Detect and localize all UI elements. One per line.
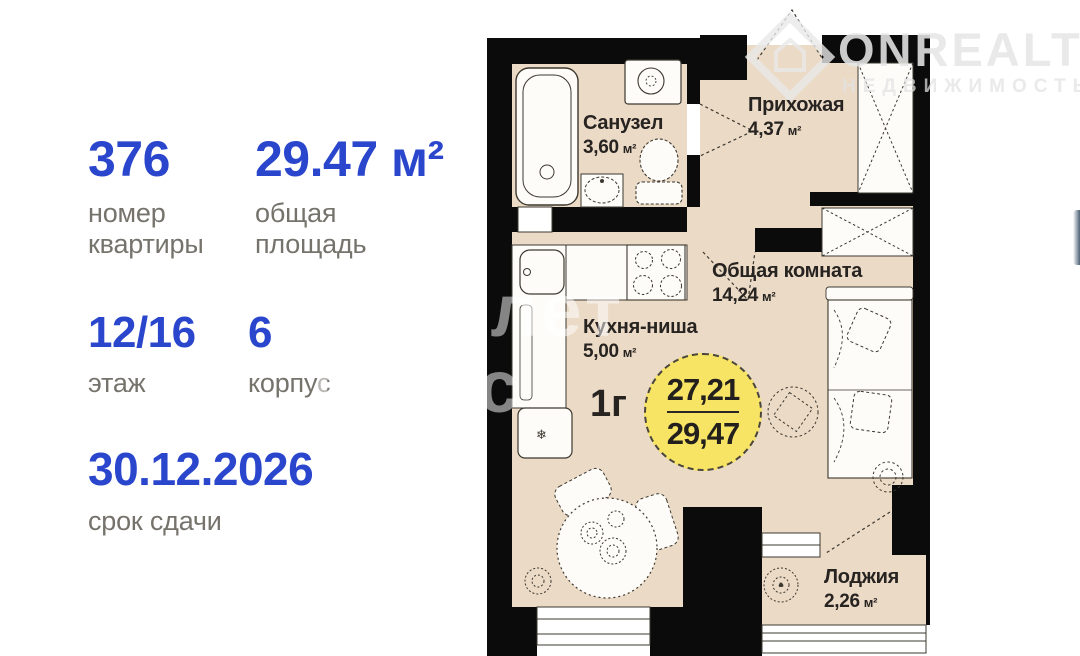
closet-icon (822, 208, 913, 256)
area-badge: 27,21 29,47 (644, 353, 762, 471)
floor-value: 12/16 (88, 308, 196, 358)
svg-text:❄: ❄ (536, 428, 547, 443)
building-label: корпус (248, 368, 330, 399)
window-main (537, 607, 650, 645)
stove-icon (627, 245, 685, 300)
stat-building: 6 корпус (248, 308, 330, 399)
washing-machine-icon (625, 60, 681, 104)
stat-deadline: 30.12.2026 срок сдачи (88, 442, 313, 537)
deadline-value: 30.12.2026 (88, 442, 313, 496)
living-area-value: 27,21 (667, 372, 740, 408)
floor-label: этаж (88, 368, 196, 399)
bath-sink-icon (581, 174, 623, 207)
deadline-label: срок сдачи (88, 506, 313, 537)
stat-floor: 12/16 этаж (88, 308, 196, 399)
building-value: 6 (248, 308, 330, 358)
onrealt-logo-subtext: НЕДВИЖИМОСТЬ (842, 76, 1080, 98)
onrealt-logo: ONREALT НЕДВИЖИМОСТЬ (748, 8, 1080, 110)
unit-type-label: 1г (590, 383, 627, 426)
onrealt-logo-text: ONREALT (838, 22, 1080, 77)
dining-table-icon (557, 498, 657, 598)
screen-edge-artifact (1073, 210, 1080, 265)
wall-niche (518, 207, 552, 232)
stat-apartment-number: 376 номер квартиры (88, 130, 204, 261)
bed-icon (826, 287, 913, 478)
apartment-number-value: 376 (88, 130, 204, 188)
fridge-icon: ❄ (518, 408, 572, 458)
room-label-loggia: Лоджия 2,26м² (824, 564, 899, 615)
window-loggia-glazing (762, 625, 926, 653)
apartment-listing-card: ❄ (0, 0, 1080, 656)
total-area-value: 29.47 м² (255, 130, 444, 188)
room-label-bathroom: Санузел 3,60м² (583, 110, 663, 161)
stat-total-area: 29.47 м² общая площадь (255, 130, 444, 261)
badge-divider (667, 411, 739, 413)
total-area-badge-value: 29,47 (667, 416, 740, 452)
bathtub-icon (516, 68, 578, 205)
room-label-living: Общая комната 14,24м² (712, 258, 862, 309)
total-area-label: общая площадь (255, 198, 444, 261)
apartment-number-label: номер квартиры (88, 198, 204, 261)
